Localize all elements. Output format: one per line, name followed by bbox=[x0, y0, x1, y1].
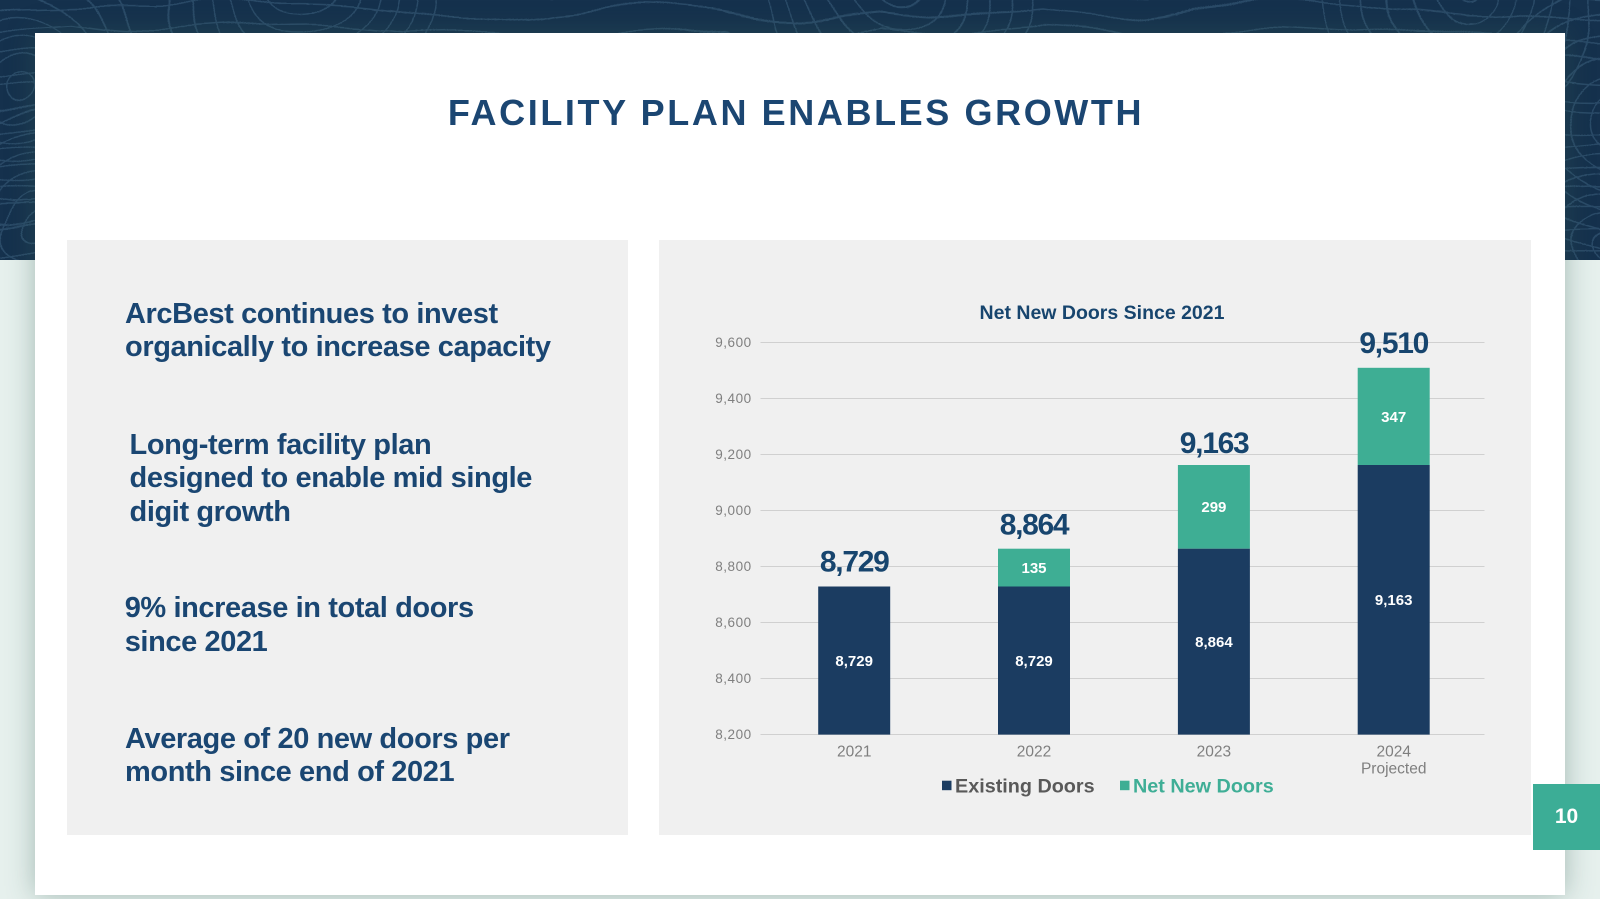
svg-text:8,600: 8,600 bbox=[715, 615, 751, 630]
svg-text:9,000: 9,000 bbox=[715, 503, 751, 518]
svg-text:8,729: 8,729 bbox=[835, 653, 873, 670]
svg-text:2023: 2023 bbox=[1197, 744, 1231, 761]
svg-text:299: 299 bbox=[1201, 499, 1226, 516]
svg-text:8,864: 8,864 bbox=[1195, 634, 1233, 651]
svg-text:2024: 2024 bbox=[1376, 744, 1411, 761]
svg-text:9,200: 9,200 bbox=[715, 447, 751, 462]
svg-text:8,400: 8,400 bbox=[715, 671, 751, 686]
svg-text:Existing Doors: Existing Doors bbox=[955, 776, 1095, 798]
svg-text:8,200: 8,200 bbox=[715, 727, 751, 742]
svg-text:347: 347 bbox=[1381, 409, 1406, 426]
svg-text:8,729: 8,729 bbox=[820, 545, 889, 578]
svg-text:8,729: 8,729 bbox=[1015, 653, 1053, 670]
svg-text:9,510: 9,510 bbox=[1359, 327, 1428, 360]
svg-text:9,600: 9,600 bbox=[715, 335, 751, 350]
svg-text:9,163: 9,163 bbox=[1375, 592, 1413, 609]
svg-text:Net New Doors Since 2021: Net New Doors Since 2021 bbox=[980, 302, 1225, 324]
svg-text:Net New Doors: Net New Doors bbox=[1133, 776, 1274, 798]
svg-text:8,864: 8,864 bbox=[1000, 508, 1070, 541]
svg-text:2022: 2022 bbox=[1017, 744, 1051, 761]
svg-text:2021: 2021 bbox=[837, 744, 871, 761]
svg-text:9,163: 9,163 bbox=[1180, 427, 1249, 460]
svg-text:8,800: 8,800 bbox=[715, 559, 751, 574]
svg-text:9,400: 9,400 bbox=[715, 391, 751, 406]
svg-text:Projected: Projected bbox=[1361, 761, 1426, 778]
svg-text:135: 135 bbox=[1021, 560, 1046, 577]
